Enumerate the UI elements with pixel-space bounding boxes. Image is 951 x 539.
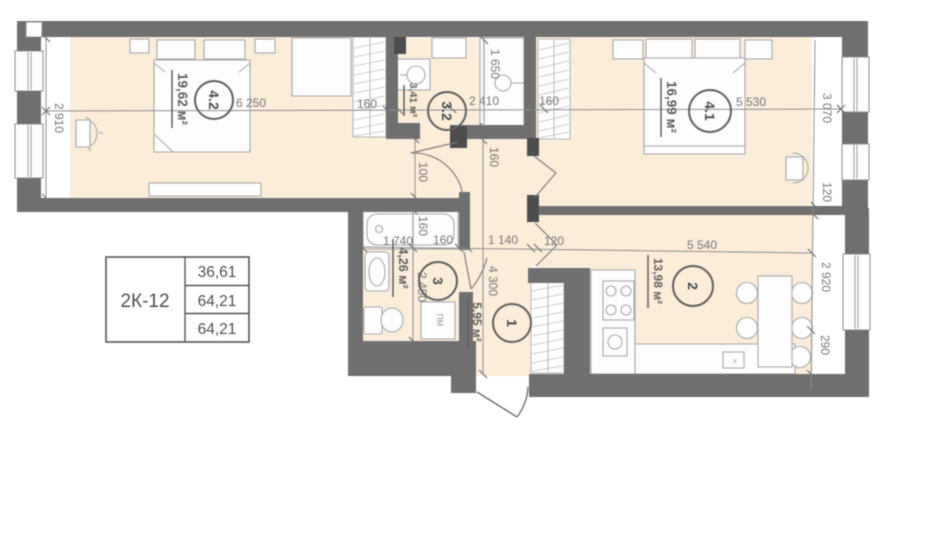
svg-text:64,21: 64,21: [198, 293, 237, 310]
svg-text:160: 160: [433, 233, 453, 247]
svg-text:4.1: 4.1: [702, 101, 718, 121]
svg-text:6 250: 6 250: [236, 96, 266, 110]
svg-text:3 070: 3 070: [820, 93, 834, 123]
svg-text:160: 160: [357, 97, 377, 111]
svg-text:3.2: 3.2: [439, 101, 455, 121]
svg-text:4,26 м²: 4,26 м²: [396, 247, 410, 288]
svg-text:36,61: 36,61: [198, 264, 237, 281]
svg-text:16,99 м²: 16,99 м²: [664, 81, 679, 134]
svg-text:5,95 м²: 5,95 м²: [470, 302, 484, 342]
svg-text:x: x: [733, 358, 737, 365]
svg-text:ПМ: ПМ: [435, 314, 444, 327]
svg-text:3: 3: [430, 277, 446, 285]
svg-text:2К-12: 2К-12: [120, 291, 169, 312]
svg-text:1 140: 1 140: [488, 233, 518, 247]
svg-text:1 740: 1 740: [383, 234, 413, 248]
svg-text:5 540: 5 540: [687, 238, 717, 252]
svg-text:1: 1: [504, 319, 520, 327]
svg-text:19,62 м²: 19,62 м²: [175, 73, 190, 126]
svg-text:13,98 м²: 13,98 м²: [651, 258, 665, 304]
svg-text:4 300: 4 300: [486, 266, 500, 296]
svg-text:2 920: 2 920: [819, 262, 833, 292]
svg-text:1 650: 1 650: [488, 49, 502, 79]
svg-text:120: 120: [820, 182, 834, 202]
svg-text:2 910: 2 910: [52, 103, 66, 133]
svg-text:160: 160: [416, 216, 430, 236]
svg-text:290: 290: [818, 335, 832, 355]
svg-text:64,21: 64,21: [198, 321, 237, 338]
svg-text:160: 160: [539, 94, 559, 108]
svg-text:160: 160: [487, 147, 501, 167]
svg-text:5 530: 5 530: [736, 95, 766, 109]
svg-text:3,41 м²: 3,41 м²: [407, 83, 419, 118]
svg-text:120: 120: [544, 234, 564, 248]
svg-text:4.2: 4.2: [206, 90, 222, 110]
svg-text:2 410: 2 410: [469, 94, 499, 108]
svg-text:100: 100: [416, 162, 430, 182]
svg-text:2: 2: [685, 282, 701, 290]
svg-text:2 450: 2 450: [415, 272, 429, 302]
